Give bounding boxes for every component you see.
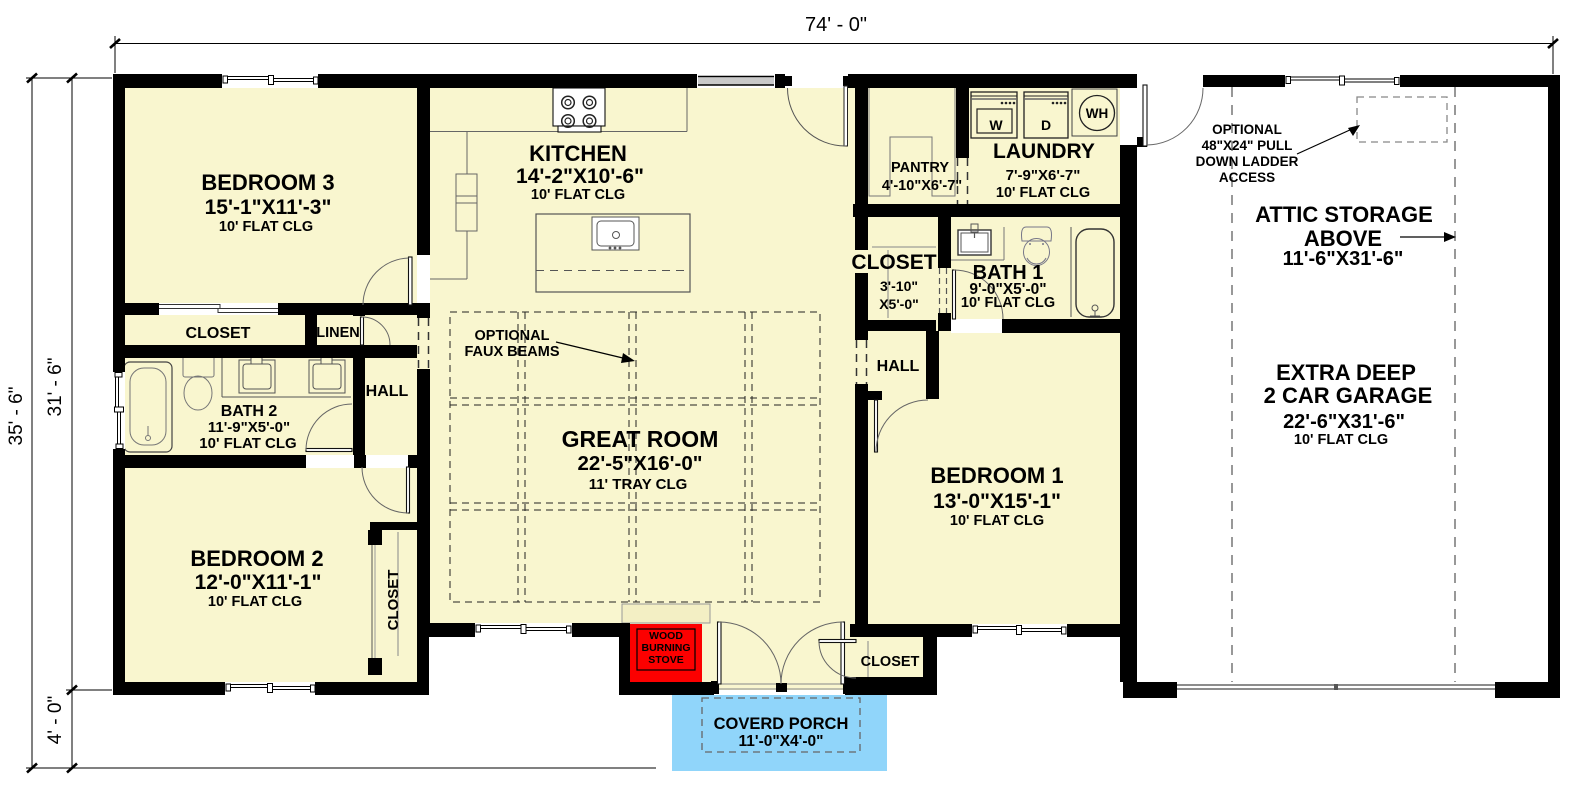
svg-text:EXTRA DEEP: EXTRA DEEP [1276, 360, 1416, 385]
svg-text:HALL: HALL [877, 358, 920, 375]
svg-text:WOOD: WOOD [649, 630, 683, 642]
svg-text:10' FLAT CLG: 10' FLAT CLG [950, 513, 1044, 529]
svg-text:X5'-0": X5'-0" [879, 296, 919, 312]
svg-text:11'-6"X31'-6": 11'-6"X31'-6" [1283, 248, 1404, 270]
svg-text:22'-6"X31'-6": 22'-6"X31'-6" [1283, 411, 1405, 433]
svg-text:LAUNDRY: LAUNDRY [993, 140, 1095, 163]
svg-text:11' TRAY CLG: 11' TRAY CLG [589, 476, 688, 493]
svg-text:10' FLAT CLG: 10' FLAT CLG [961, 295, 1055, 311]
svg-text:12'-0"X11'-1": 12'-0"X11'-1" [195, 571, 322, 594]
svg-text:2 CAR GARAGE: 2 CAR GARAGE [1264, 383, 1433, 408]
svg-text:BATH 2: BATH 2 [221, 403, 278, 420]
svg-text:13'-0"X15'-1": 13'-0"X15'-1" [933, 490, 1061, 513]
svg-text:WH: WH [1086, 106, 1109, 121]
svg-text:CLOSET: CLOSET [186, 325, 251, 342]
svg-text:W: W [989, 117, 1003, 133]
svg-text:CLOSET: CLOSET [385, 570, 402, 631]
svg-text:FAUX BEAMS: FAUX BEAMS [464, 344, 559, 360]
svg-text:ATTIC STORAGE: ATTIC STORAGE [1255, 202, 1433, 227]
svg-text:BEDROOM 2: BEDROOM 2 [190, 546, 323, 571]
svg-text:BEDROOM 3: BEDROOM 3 [201, 170, 334, 195]
svg-text:4' - 0": 4' - 0" [45, 696, 66, 744]
svg-text:PANTRY: PANTRY [891, 160, 949, 176]
svg-text:CLOSET: CLOSET [861, 654, 920, 670]
svg-text:BURNING: BURNING [642, 642, 691, 654]
svg-text:15'-1"X11'-3": 15'-1"X11'-3" [205, 196, 332, 219]
svg-text:OPTIONAL: OPTIONAL [1212, 122, 1282, 137]
svg-text:10' FLAT CLG: 10' FLAT CLG [1294, 432, 1388, 448]
svg-text:4'-10"X6'-7": 4'-10"X6'-7" [882, 178, 962, 194]
svg-text:35' - 6": 35' - 6" [6, 387, 27, 446]
svg-text:LINEN: LINEN [316, 325, 360, 341]
svg-text:10' FLAT CLG: 10' FLAT CLG [208, 594, 302, 610]
svg-text:ACCESS: ACCESS [1219, 170, 1275, 185]
svg-text:GREAT ROOM: GREAT ROOM [562, 426, 719, 452]
svg-text:10' FLAT CLG: 10' FLAT CLG [531, 187, 625, 203]
svg-text:74' - 0": 74' - 0" [805, 14, 867, 36]
svg-text:10' FLAT CLG: 10' FLAT CLG [199, 435, 296, 452]
svg-text:10' FLAT CLG: 10' FLAT CLG [219, 219, 313, 235]
svg-text:3'-10": 3'-10" [880, 278, 918, 294]
svg-text:D: D [1041, 117, 1051, 133]
svg-text:CLOSET: CLOSET [851, 251, 936, 274]
svg-text:KITCHEN: KITCHEN [529, 141, 627, 166]
svg-text:BEDROOM 1: BEDROOM 1 [930, 463, 1063, 488]
svg-text:22'-5"X16'-0": 22'-5"X16'-0" [578, 452, 703, 475]
svg-text:10' FLAT CLG: 10' FLAT CLG [996, 185, 1090, 201]
svg-text:HALL: HALL [366, 383, 409, 400]
svg-text:11'-9"X5'-0": 11'-9"X5'-0" [208, 419, 290, 436]
svg-text:7'-9"X6'-7": 7'-9"X6'-7" [1006, 167, 1081, 184]
svg-text:11'-0"X4'-0": 11'-0"X4'-0" [739, 733, 824, 750]
svg-text:STOVE: STOVE [648, 654, 683, 666]
svg-text:14'-2"X10'-6": 14'-2"X10'-6" [516, 165, 644, 188]
svg-text:31' - 6": 31' - 6" [45, 358, 66, 417]
svg-text:DOWN LADDER: DOWN LADDER [1196, 154, 1299, 169]
svg-text:OPTIONAL: OPTIONAL [475, 328, 550, 344]
svg-text:COVERD PORCH: COVERD PORCH [714, 715, 849, 733]
svg-text:48"X24" PULL: 48"X24" PULL [1202, 138, 1293, 153]
